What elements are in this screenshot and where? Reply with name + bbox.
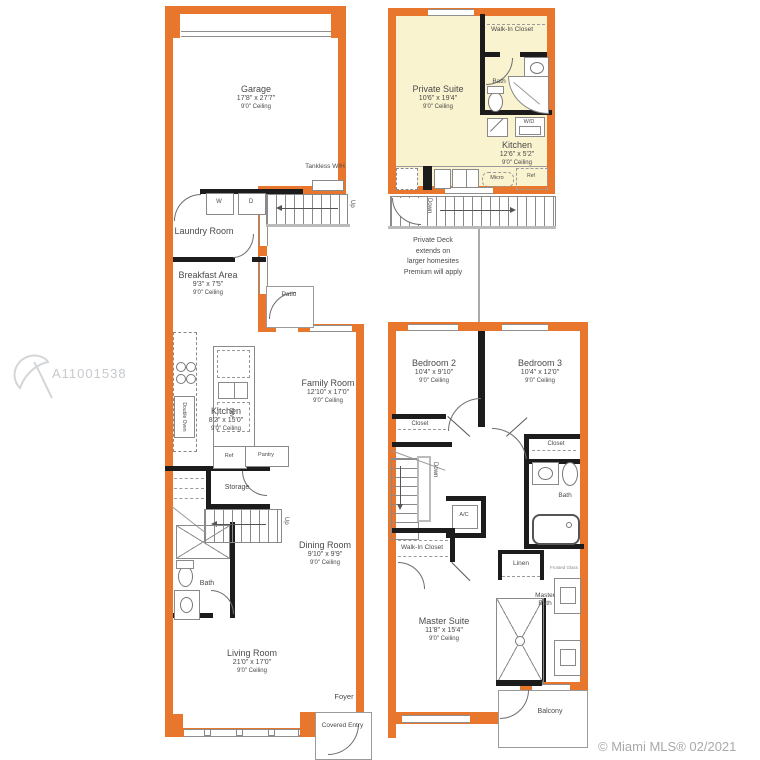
stair-arrow-head <box>397 504 403 510</box>
ac-unit <box>487 118 508 137</box>
closet-label: Closet <box>534 441 578 448</box>
garage-door <box>181 31 331 37</box>
washer-label: W <box>206 199 232 206</box>
sink <box>538 467 553 480</box>
wall <box>446 496 486 501</box>
stair-arrow <box>440 210 510 211</box>
double-oven-label: Double Oven <box>181 400 187 434</box>
room-label-foyer: Foyer <box>326 693 362 701</box>
shower <box>176 525 230 559</box>
wall <box>392 528 454 533</box>
deck-note: Private Deck extends on larger homesites… <box>390 236 476 278</box>
window <box>310 325 352 332</box>
room-label-living: Living Room 21'0" x 17'0" 9'0" Ceiling <box>207 648 297 676</box>
tub-drain <box>566 522 572 528</box>
wall <box>165 6 180 38</box>
sink <box>560 587 576 604</box>
wall <box>173 257 235 262</box>
toilet-tank <box>176 560 194 569</box>
room-label-patio: Patio <box>272 291 306 298</box>
copyright-text: © Miami MLS® 02/2021 <box>598 739 736 754</box>
bathtub <box>532 514 580 545</box>
closet-rod <box>398 429 446 430</box>
stairs-down-label: Down <box>431 462 438 477</box>
wall <box>423 166 432 190</box>
room-label-kitchen2: Kitchen 12'6" x 5'2" 9'0" Ceiling <box>482 140 552 168</box>
sink <box>218 382 235 399</box>
linen-label: Linen <box>500 560 542 567</box>
tankless-wh-label: Tankless W/H <box>302 163 348 170</box>
stair-arrow <box>400 466 401 504</box>
frosted-glass-label: Frosted Glass <box>548 566 580 571</box>
deck-boundary <box>478 229 480 322</box>
floorplan-canvas: A11001538 © Miami MLS® 02/2021 W D Up <box>0 0 760 760</box>
stair-rail <box>388 226 556 229</box>
room-label-storage: Storage <box>212 484 262 492</box>
dryer-label: D <box>238 199 264 206</box>
wall <box>392 414 446 419</box>
window-mullion <box>268 729 275 736</box>
closet-label: Closet <box>398 421 442 428</box>
stairs-up-label: Up <box>348 200 355 208</box>
sink <box>466 169 479 188</box>
sink <box>180 597 193 613</box>
window <box>428 9 474 16</box>
window <box>502 324 548 331</box>
window-mullion <box>236 729 243 736</box>
door-arc <box>233 234 254 258</box>
room-label-balcony: Balcony <box>530 708 570 716</box>
wall <box>480 14 485 57</box>
understair-shelf <box>174 488 204 489</box>
island-cabinet <box>217 350 250 378</box>
stair-rail <box>417 456 431 522</box>
toilet-tank <box>487 86 504 94</box>
room-label-laundry: Laundry Room <box>172 226 236 237</box>
wall <box>300 712 316 737</box>
window <box>402 715 470 723</box>
washer-dryer-label: W/D <box>515 119 543 125</box>
linen-shelf <box>502 576 540 577</box>
cabinet <box>396 168 418 190</box>
wall <box>165 6 173 737</box>
fridge-label: Ref <box>516 174 546 180</box>
stove-burner <box>176 362 186 372</box>
microwave-label: Micro <box>482 175 512 181</box>
window <box>445 187 493 194</box>
stairs-down-label: Down <box>425 198 432 213</box>
wall <box>165 6 346 14</box>
room-label-bath2: Bath <box>550 492 580 499</box>
room-label-bath-suite: Bath <box>486 78 512 85</box>
room-label-private-suite: Private Suite 10'6" x 19'4" 9'0" Ceiling <box>394 84 482 112</box>
stair-rail <box>266 224 350 227</box>
wall <box>388 700 396 738</box>
walkin-master-label: Walk-In Closet <box>396 544 448 551</box>
watermark-mls-id: A11001538 <box>52 366 127 381</box>
sink <box>530 62 544 74</box>
closet-rod <box>398 556 448 557</box>
room-label-bedroom2: Bedroom 2 10'4" x 9'10" 9'0" Ceiling <box>394 358 474 386</box>
wall <box>392 442 452 447</box>
window-mullion <box>204 729 211 736</box>
stair-arrow-head <box>510 207 516 213</box>
sink <box>234 382 248 399</box>
sink <box>560 649 576 666</box>
closet-rod <box>487 24 545 25</box>
washer-dryer-drawer <box>519 126 541 135</box>
understair-shelf <box>174 478 204 479</box>
closet-rod <box>398 540 448 541</box>
room-label-garage: Garage 17'8" x 27'7" 9'0" Ceiling <box>211 84 301 112</box>
door-arc <box>492 428 527 463</box>
toilet <box>178 566 193 587</box>
window <box>408 324 458 331</box>
pedestal-sink <box>562 462 578 486</box>
wall <box>524 459 529 549</box>
wall <box>252 257 266 262</box>
room-label-master-suite: Master Suite 11'8" x 15'4" 9'0" Ceiling <box>400 616 488 644</box>
stove-burner <box>176 374 186 384</box>
angled-door <box>451 562 470 581</box>
stove-burner <box>186 362 196 372</box>
wall <box>206 466 211 509</box>
wall <box>580 322 588 690</box>
closet-rod <box>532 450 576 451</box>
dishwasher <box>434 169 451 189</box>
walkin-closet-label: Walk-In Closet <box>490 26 534 33</box>
room-label-covered-entry: Covered Entry <box>315 722 370 729</box>
room-label-bath: Bath <box>192 580 222 588</box>
room-label-kitchen: Kitchen 8'2" x 15'0" 9'0" Ceiling <box>191 406 261 434</box>
door-arc <box>398 562 425 589</box>
pantry-label: Pantry <box>245 452 287 458</box>
room-label-breakfast: Breakfast Area 9'3" x 7'5" 9'0" Ceiling <box>166 270 250 298</box>
fridge-label: Ref <box>213 453 245 459</box>
understair-shelf <box>174 498 204 499</box>
stair-arrow <box>282 208 338 209</box>
toilet <box>488 92 503 112</box>
sink <box>452 169 467 188</box>
room-label-bedroom3: Bedroom 3 10'4" x 12'0" 9'0" Ceiling <box>500 358 580 386</box>
door-arc <box>174 194 201 221</box>
wall <box>496 680 542 686</box>
wall <box>524 434 580 439</box>
shower-drain <box>515 636 525 646</box>
wall <box>498 550 544 554</box>
door-arc <box>448 398 481 431</box>
stove-burner <box>186 374 196 384</box>
wall <box>450 528 455 562</box>
wall <box>481 496 486 538</box>
stair-arrow-head <box>276 205 282 211</box>
stairs-up-label: Up <box>282 517 289 525</box>
room-label-family: Family Room 12'10" x 17'0" 9'0" Ceiling <box>288 378 368 406</box>
room-label-dining: Dining Room 9'10" x 9'9" 9'0" Ceiling <box>285 540 365 568</box>
water-heater <box>312 180 344 191</box>
ac-label: A/C <box>452 512 476 518</box>
